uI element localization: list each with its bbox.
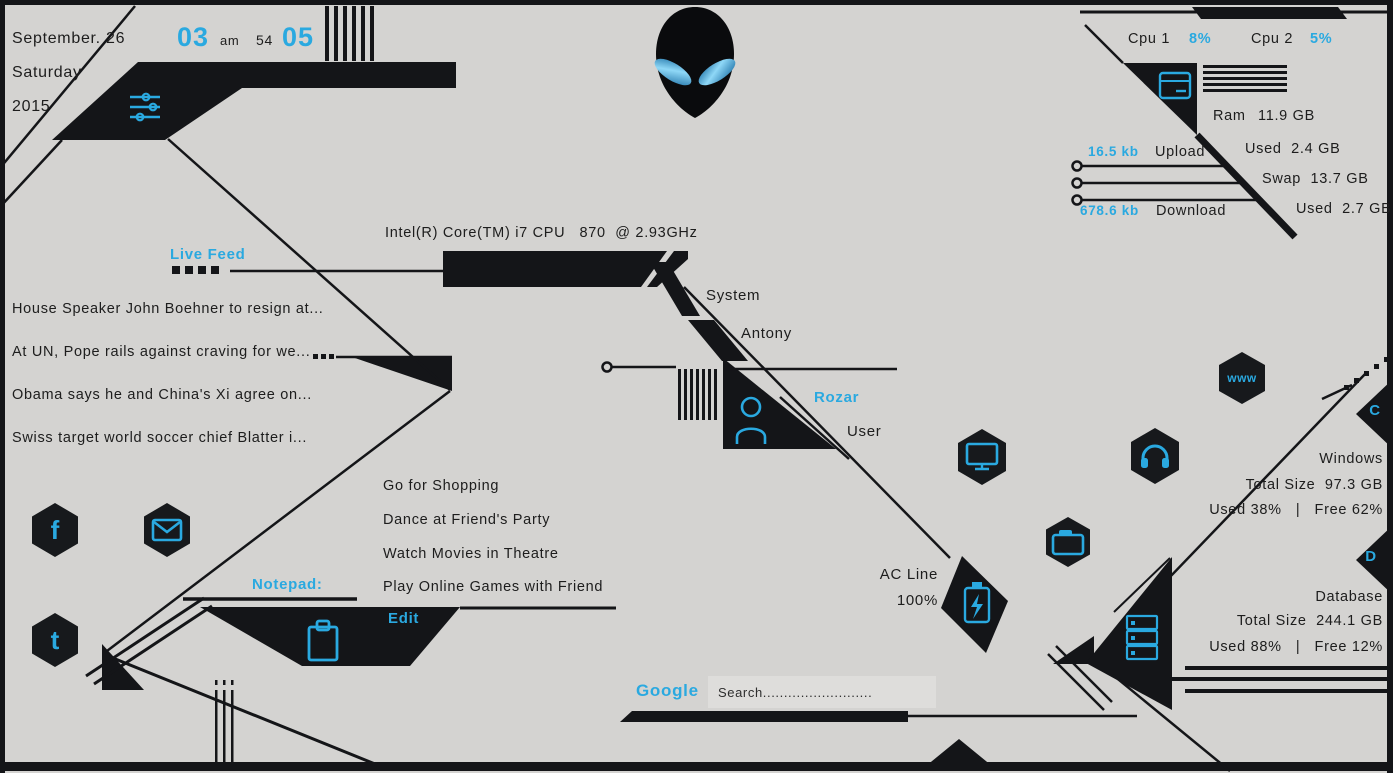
www-icon: www xyxy=(1227,372,1257,384)
cpu2-value: 5% xyxy=(1310,31,1332,47)
user-label: User xyxy=(847,423,881,440)
cpu-chip-name: Intel(R) Core(TM) i7 CPU 870 @ 2.93GHz xyxy=(385,225,698,241)
system-name: Antony xyxy=(741,325,792,342)
decor-notepad-line xyxy=(94,606,212,684)
todo-item: Go for Shopping xyxy=(383,478,499,494)
download-value: 678.6 kb xyxy=(1080,203,1139,218)
news-item[interactable]: House Speaker John Boehner to resign at.… xyxy=(12,301,324,317)
facebook-icon: f xyxy=(51,517,60,543)
decor-border-bottom xyxy=(0,762,1393,771)
decor-feed-dots xyxy=(172,266,219,274)
decor-border-left xyxy=(0,0,5,773)
news-item[interactable]: Obama says he and China's Xi agree on... xyxy=(12,387,312,403)
decor-header-ribbon xyxy=(52,62,456,140)
desktop: September. 26 Saturday 2015 03 am 54 05 … xyxy=(0,0,1393,773)
decor-top-comb xyxy=(325,6,374,61)
user-name: Rozar xyxy=(814,389,859,406)
decor-diagonal xyxy=(1085,25,1123,63)
ram-label: Ram xyxy=(1213,108,1246,124)
monitor-icon xyxy=(965,442,999,472)
cpu1-label: Cpu 1 xyxy=(1128,31,1170,47)
decor-search-bar xyxy=(620,711,908,722)
notepad-edit-button[interactable]: Edit xyxy=(388,610,419,627)
envelope-icon xyxy=(151,518,183,542)
decor-center-comb xyxy=(678,369,717,420)
decor-node xyxy=(603,363,612,372)
power-label: AC Line xyxy=(880,566,938,583)
drive-d-badge[interactable]: D xyxy=(1360,548,1382,565)
decor-top-bar xyxy=(1192,7,1347,19)
clock-second: 05 xyxy=(282,22,314,53)
database-usage: Used 88% | Free 12% xyxy=(1209,639,1383,655)
swap-used: Used 2.7 GB xyxy=(1296,201,1391,217)
decor-notepad-line xyxy=(86,598,204,676)
todo-item: Watch Movies in Theatre xyxy=(383,546,559,562)
decor-news-wedge xyxy=(352,357,452,391)
notepad-title: Notepad: xyxy=(252,576,323,593)
download-label: Download xyxy=(1156,203,1226,219)
clock-hour: 03 xyxy=(177,22,209,53)
system-label: System xyxy=(706,287,760,304)
upload-value: 16.5 kb xyxy=(1088,144,1139,159)
date-year: 2015 xyxy=(12,98,50,116)
tumblr-icon: t xyxy=(51,627,60,653)
cpu1-value: 8% xyxy=(1189,31,1211,47)
decor-notepad-tray xyxy=(200,607,460,666)
headphones-icon xyxy=(1139,443,1171,469)
windows-total: Total Size 97.3 GB xyxy=(1246,477,1383,493)
decor-triple-lines xyxy=(1168,666,1390,693)
ram-used: Used 2.4 GB xyxy=(1245,141,1340,157)
todo-item: Dance at Friend's Party xyxy=(383,512,550,528)
clock-minute: 54 xyxy=(256,32,273,48)
date-weekday: Saturday xyxy=(12,64,82,82)
decor-ribbon xyxy=(688,320,748,361)
power-value: 100% xyxy=(897,592,938,609)
drive-c-badge[interactable]: C xyxy=(1364,402,1386,419)
ram-total: 11.9 GB xyxy=(1258,108,1315,124)
news-item[interactable]: Swiss target world soccer chief Blatter … xyxy=(12,430,307,446)
swap-total: Swap 13.7 GB xyxy=(1262,171,1369,187)
alien-icon xyxy=(645,2,745,122)
decor-news-dots xyxy=(313,354,334,359)
upload-label: Upload xyxy=(1155,144,1205,160)
windows-name: Windows xyxy=(1319,451,1383,467)
search-input[interactable] xyxy=(708,676,936,708)
decor-bottom-wedge xyxy=(926,739,992,766)
folder-icon xyxy=(1051,528,1085,556)
google-label[interactable]: Google xyxy=(636,681,699,701)
date-full: September. 26 xyxy=(12,30,125,48)
decor-diagonal xyxy=(103,654,380,766)
decor-diagonal xyxy=(0,140,62,207)
sliders-icon[interactable] xyxy=(130,94,160,121)
database-name: Database xyxy=(1315,589,1383,605)
decor-hatch-lines xyxy=(1203,65,1287,92)
live-feed-title: Live Feed xyxy=(170,246,246,263)
database-total: Total Size 244.1 GB xyxy=(1237,613,1383,629)
decor-cpu-bar xyxy=(443,251,667,287)
todo-item: Play Online Games with Friend xyxy=(383,579,603,595)
clock-meridiem: am xyxy=(220,33,239,48)
decor-bottom-comb xyxy=(215,680,234,762)
windows-usage: Used 38% | Free 62% xyxy=(1209,502,1383,518)
news-item[interactable]: At UN, Pope rails against craving for we… xyxy=(12,344,310,360)
cpu2-label: Cpu 2 xyxy=(1251,31,1293,47)
